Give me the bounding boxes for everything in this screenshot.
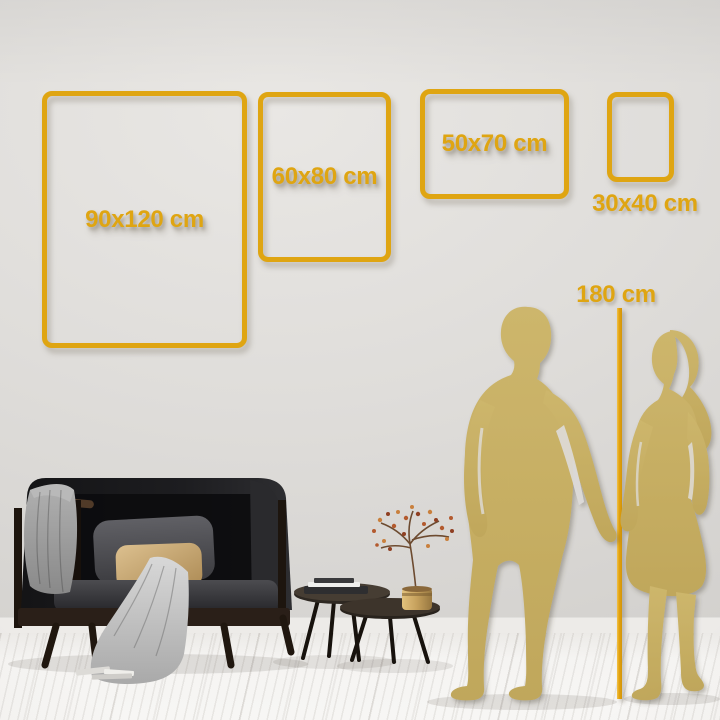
couple-silhouette-layer xyxy=(0,0,720,720)
woman-silhouette xyxy=(620,330,711,700)
size-guide-scene: 90x120 cm 60x80 cm 50x70 cm 30x40 cm 180… xyxy=(0,0,720,720)
man-silhouette xyxy=(451,307,617,701)
